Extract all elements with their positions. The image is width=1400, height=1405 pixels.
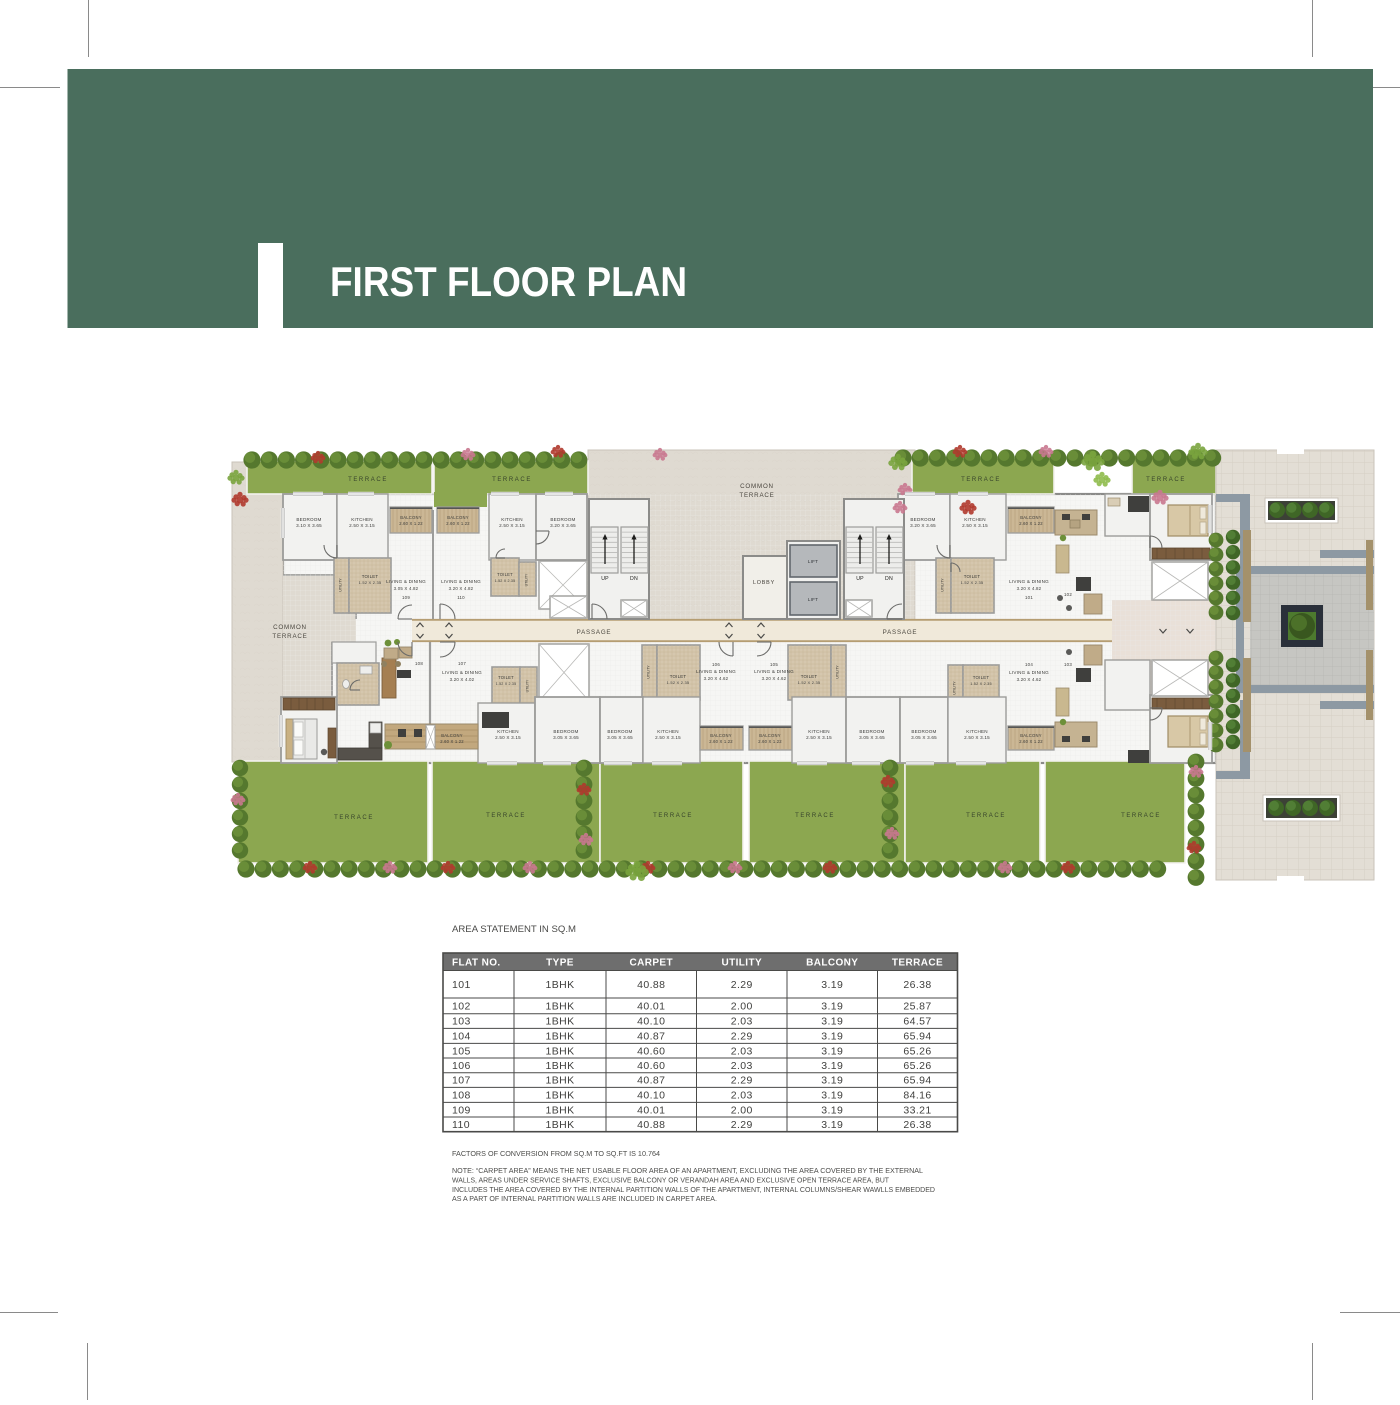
svg-text:TERRACE: TERRACE — [1146, 477, 1186, 483]
svg-text:LIVING & DINING: LIVING & DINING — [442, 670, 482, 675]
svg-text:2.00: 2.00 — [731, 1104, 753, 1116]
svg-text:COMMON: COMMON — [273, 624, 307, 631]
svg-text:3.20 X 4.02: 3.20 X 4.02 — [450, 677, 475, 682]
svg-text:LIFT: LIFT — [808, 559, 818, 564]
svg-text:3.20 X 4.82: 3.20 X 4.82 — [1017, 586, 1042, 591]
svg-text:2.60 X 1.22: 2.60 X 1.22 — [399, 521, 423, 526]
svg-text:TOILET: TOILET — [964, 574, 981, 579]
svg-text:110: 110 — [457, 595, 465, 600]
svg-text:3.20 X 3.65: 3.20 X 3.65 — [910, 523, 936, 528]
svg-text:3.05 X 3.65: 3.05 X 3.65 — [859, 735, 885, 740]
svg-text:64.57: 64.57 — [903, 1016, 931, 1028]
svg-text:40.60: 40.60 — [637, 1045, 665, 1057]
svg-text:3.19: 3.19 — [821, 1045, 843, 1057]
svg-text:40.10: 40.10 — [637, 1016, 665, 1028]
svg-text:104: 104 — [1025, 662, 1033, 667]
svg-text:FACTORS OF CONVERSION FROM SQ.: FACTORS OF CONVERSION FROM SQ.M TO SQ.FT… — [452, 1149, 660, 1158]
svg-text:BALCONY: BALCONY — [447, 515, 468, 520]
svg-text:3.19: 3.19 — [821, 1016, 843, 1028]
svg-text:40.88: 40.88 — [637, 1119, 665, 1131]
svg-text:KITCHEN: KITCHEN — [808, 729, 830, 734]
svg-text:UTILITY: UTILITY — [721, 958, 762, 969]
svg-text:BEDROOM: BEDROOM — [550, 517, 575, 522]
svg-text:TOILET: TOILET — [498, 675, 514, 680]
svg-text:AREA STATEMENT IN SQ.M: AREA STATEMENT IN SQ.M — [452, 924, 576, 935]
svg-text:LIVING & DINING: LIVING & DINING — [386, 579, 426, 584]
svg-text:2.03: 2.03 — [731, 1060, 753, 1072]
svg-text:107: 107 — [458, 661, 466, 666]
svg-text:1BHK: 1BHK — [545, 1045, 574, 1057]
svg-text:TERRACE: TERRACE — [795, 813, 835, 819]
svg-text:BALCONY: BALCONY — [1020, 515, 1041, 520]
svg-text:40.10: 40.10 — [637, 1090, 665, 1102]
svg-text:109: 109 — [402, 595, 410, 600]
svg-text:3.19: 3.19 — [821, 1090, 843, 1102]
svg-text:108: 108 — [452, 1090, 471, 1102]
svg-text:PASSAGE: PASSAGE — [883, 629, 918, 636]
svg-text:1BHK: 1BHK — [545, 1016, 574, 1028]
svg-text:105: 105 — [452, 1045, 471, 1057]
svg-text:PASSAGE: PASSAGE — [577, 629, 612, 636]
svg-text:1.52 X 2.35: 1.52 X 2.35 — [495, 579, 516, 583]
svg-text:2.00: 2.00 — [731, 1000, 753, 1012]
svg-text:2.29: 2.29 — [731, 1031, 753, 1043]
svg-text:84.16: 84.16 — [903, 1090, 931, 1102]
svg-text:DN: DN — [630, 576, 638, 582]
svg-text:3.19: 3.19 — [821, 1000, 843, 1012]
svg-text:TERRACE: TERRACE — [966, 813, 1006, 819]
svg-text:BEDROOM: BEDROOM — [553, 729, 578, 734]
svg-text:1.52 X 2.35: 1.52 X 2.35 — [359, 580, 382, 585]
svg-text:101: 101 — [452, 979, 471, 991]
svg-text:2.03: 2.03 — [731, 1016, 753, 1028]
svg-text:BALCONY: BALCONY — [1020, 733, 1041, 738]
svg-text:FLAT NO.: FLAT NO. — [452, 958, 501, 969]
svg-text:UTILITY: UTILITY — [941, 578, 945, 592]
svg-text:2.50 X 3.15: 2.50 X 3.15 — [495, 735, 521, 740]
svg-text:2.50 X 3.15: 2.50 X 3.15 — [962, 523, 988, 528]
svg-text:40.87: 40.87 — [637, 1075, 665, 1087]
svg-text:BALCONY: BALCONY — [806, 958, 858, 969]
svg-text:2.60 X 1.22: 2.60 X 1.22 — [1019, 521, 1043, 526]
svg-text:1BHK: 1BHK — [545, 979, 574, 991]
svg-text:LIVING & DINING: LIVING & DINING — [754, 669, 794, 674]
svg-text:2.29: 2.29 — [731, 1075, 753, 1087]
svg-text:TERRACE: TERRACE — [348, 477, 388, 483]
svg-text:3.20 X 4.62: 3.20 X 4.62 — [704, 676, 729, 681]
svg-text:2.50 X 3.15: 2.50 X 3.15 — [964, 735, 990, 740]
svg-text:1BHK: 1BHK — [545, 1075, 574, 1087]
svg-text:40.60: 40.60 — [637, 1060, 665, 1072]
svg-text:LIFT: LIFT — [808, 597, 818, 602]
svg-text:2.29: 2.29 — [731, 1119, 753, 1131]
svg-text:UP: UP — [601, 576, 609, 582]
svg-text:3.19: 3.19 — [821, 1060, 843, 1072]
svg-text:101: 101 — [1025, 595, 1033, 600]
svg-text:TERRACE: TERRACE — [272, 633, 307, 640]
svg-text:40.87: 40.87 — [637, 1031, 665, 1043]
svg-text:BEDROOM: BEDROOM — [859, 729, 884, 734]
svg-text:TERRACE: TERRACE — [892, 958, 943, 969]
svg-text:33.21: 33.21 — [903, 1104, 931, 1116]
svg-text:1BHK: 1BHK — [545, 1031, 574, 1043]
svg-text:3.19: 3.19 — [821, 1075, 843, 1087]
svg-text:KITCHEN: KITCHEN — [351, 517, 373, 522]
svg-text:1BHK: 1BHK — [545, 1090, 574, 1102]
svg-text:3.20 X 3.65: 3.20 X 3.65 — [550, 523, 576, 528]
svg-text:3.20 X 4.82: 3.20 X 4.82 — [449, 586, 474, 591]
svg-text:1.52 X 2.35: 1.52 X 2.35 — [496, 682, 517, 686]
svg-text:65.94: 65.94 — [903, 1031, 931, 1043]
svg-text:1.52 X 2.35: 1.52 X 2.35 — [961, 580, 984, 585]
svg-text:106: 106 — [712, 662, 720, 667]
svg-text:BALCONY: BALCONY — [710, 733, 731, 738]
svg-text:2.60 X 1.22: 2.60 X 1.22 — [758, 739, 782, 744]
svg-text:CARPET: CARPET — [629, 958, 673, 969]
svg-text:102: 102 — [1064, 592, 1072, 597]
svg-text:TERRACE: TERRACE — [334, 815, 374, 821]
svg-text:65.26: 65.26 — [903, 1060, 931, 1072]
svg-text:BALCONY: BALCONY — [759, 733, 780, 738]
svg-text:40.01: 40.01 — [637, 1000, 665, 1012]
svg-text:1.52 X 2.35: 1.52 X 2.35 — [970, 682, 992, 686]
svg-text:LIVING & DINING: LIVING & DINING — [441, 579, 481, 584]
svg-text:25.87: 25.87 — [903, 1000, 931, 1012]
svg-text:BALCONY: BALCONY — [441, 733, 462, 738]
svg-text:TOILET: TOILET — [973, 675, 990, 680]
svg-text:1BHK: 1BHK — [545, 1119, 574, 1131]
svg-text:KITCHEN: KITCHEN — [964, 517, 986, 522]
svg-text:BEDROOM: BEDROOM — [607, 729, 632, 734]
svg-text:106: 106 — [452, 1060, 471, 1072]
svg-text:TERRACE: TERRACE — [486, 813, 526, 819]
svg-text:LIVING & DINING: LIVING & DINING — [1009, 670, 1049, 675]
svg-text:UTILITY: UTILITY — [647, 665, 651, 679]
svg-text:LIVING & DINING: LIVING & DINING — [696, 669, 736, 674]
svg-text:1.52 X 2.35: 1.52 X 2.35 — [667, 680, 690, 685]
svg-text:3.05 X 3.65: 3.05 X 3.65 — [911, 735, 937, 740]
svg-text:2.03: 2.03 — [731, 1045, 753, 1057]
svg-text:2.60 X 1.22: 2.60 X 1.22 — [1019, 739, 1043, 744]
svg-text:3.05 X 4.82: 3.05 X 4.82 — [394, 586, 419, 591]
svg-text:TOILET: TOILET — [362, 574, 379, 579]
svg-text:2.50 X 3.15: 2.50 X 3.15 — [349, 523, 375, 528]
svg-text:3.05 X 3.65: 3.05 X 3.65 — [607, 735, 633, 740]
svg-text:FIRST FLOOR PLAN: FIRST FLOOR PLAN — [330, 258, 687, 305]
svg-text:UTILITY: UTILITY — [836, 665, 840, 679]
svg-text:109: 109 — [452, 1104, 471, 1116]
svg-text:TERRACE: TERRACE — [739, 492, 774, 499]
svg-text:2.03: 2.03 — [731, 1090, 753, 1102]
svg-text:DN: DN — [885, 576, 893, 582]
svg-text:2.50 X 3.15: 2.50 X 3.15 — [655, 735, 681, 740]
svg-text:26.38: 26.38 — [903, 979, 931, 991]
svg-text:AS A PART OF INTERNAL PARTITIO: AS A PART OF INTERNAL PARTITION WALLS AR… — [452, 1194, 717, 1203]
svg-text:3.10 X 3.65: 3.10 X 3.65 — [296, 523, 322, 528]
svg-text:40.01: 40.01 — [637, 1104, 665, 1116]
svg-text:UTILITY: UTILITY — [953, 681, 957, 695]
svg-text:LIVING & DINING: LIVING & DINING — [1009, 579, 1049, 584]
svg-text:TOILET: TOILET — [497, 572, 513, 577]
svg-text:UP: UP — [856, 576, 864, 582]
svg-text:65.26: 65.26 — [903, 1045, 931, 1057]
svg-text:2.60 X 1.22: 2.60 X 1.22 — [709, 739, 733, 744]
svg-text:UTILITY: UTILITY — [526, 679, 530, 692]
svg-text:UTILITY: UTILITY — [339, 578, 343, 592]
svg-text:TOILET: TOILET — [670, 674, 687, 679]
svg-text:3.20 X 4.62: 3.20 X 4.62 — [1017, 677, 1042, 682]
svg-text:KITCHEN: KITCHEN — [501, 517, 523, 522]
svg-text:TERRACE: TERRACE — [961, 477, 1001, 483]
svg-text:65.94: 65.94 — [903, 1075, 931, 1087]
svg-text:TERRACE: TERRACE — [492, 477, 532, 483]
svg-text:1BHK: 1BHK — [545, 1060, 574, 1072]
svg-text:2.50 X 3.15: 2.50 X 3.15 — [806, 735, 832, 740]
svg-text:INCLUDES THE AREA COVERED BY T: INCLUDES THE AREA COVERED BY THE INTERNA… — [452, 1185, 935, 1194]
svg-text:105: 105 — [770, 662, 778, 667]
svg-text:102: 102 — [452, 1000, 471, 1012]
svg-text:WALLS, AREAS UNDER SERVICE SHA: WALLS, AREAS UNDER SERVICE SHAFTS, EXCLU… — [452, 1175, 889, 1184]
svg-text:3.19: 3.19 — [821, 1119, 843, 1131]
svg-text:3.19: 3.19 — [821, 979, 843, 991]
svg-text:3.19: 3.19 — [821, 1031, 843, 1043]
svg-text:107: 107 — [452, 1075, 471, 1087]
svg-text:TYPE: TYPE — [546, 958, 574, 969]
svg-text:104: 104 — [452, 1031, 471, 1043]
svg-text:2.50 X 3.15: 2.50 X 3.15 — [499, 523, 525, 528]
svg-text:KITCHEN: KITCHEN — [657, 729, 679, 734]
svg-text:3.05 X 3.65: 3.05 X 3.65 — [553, 735, 579, 740]
svg-text:LOBBY: LOBBY — [753, 580, 775, 586]
svg-text:1BHK: 1BHK — [545, 1104, 574, 1116]
svg-text:BEDROOM: BEDROOM — [911, 729, 936, 734]
svg-text:TERRACE: TERRACE — [653, 813, 693, 819]
svg-text:BEDROOM: BEDROOM — [910, 517, 935, 522]
svg-text:COMMON: COMMON — [740, 483, 774, 490]
svg-text:3.20 X 4.62: 3.20 X 4.62 — [762, 676, 787, 681]
svg-text:TOILET: TOILET — [801, 674, 818, 679]
svg-text:KITCHEN: KITCHEN — [497, 729, 519, 734]
svg-text:1.52 X 2.35: 1.52 X 2.35 — [798, 680, 821, 685]
svg-text:3.19: 3.19 — [821, 1104, 843, 1116]
svg-text:40.88: 40.88 — [637, 979, 665, 991]
svg-text:NOTE: “CARPET AREA” MEANS THE: NOTE: “CARPET AREA” MEANS THE NET USABLE… — [452, 1166, 923, 1175]
svg-text:2.60 X 1.22: 2.60 X 1.22 — [440, 739, 464, 744]
svg-text:108: 108 — [415, 661, 423, 666]
svg-text:110: 110 — [452, 1119, 470, 1131]
svg-text:UTILITY: UTILITY — [525, 573, 529, 586]
svg-text:2.60 X 1.22: 2.60 X 1.22 — [446, 521, 470, 526]
svg-text:103: 103 — [452, 1016, 471, 1028]
svg-text:KITCHEN: KITCHEN — [966, 729, 988, 734]
svg-text:1BHK: 1BHK — [545, 1000, 574, 1012]
svg-text:26.38: 26.38 — [903, 1119, 931, 1131]
svg-text:BEDROOM: BEDROOM — [296, 517, 321, 522]
svg-text:BALCONY: BALCONY — [400, 515, 421, 520]
svg-text:2.29: 2.29 — [731, 979, 753, 991]
svg-text:103: 103 — [1064, 662, 1072, 667]
svg-text:TERRACE: TERRACE — [1121, 813, 1161, 819]
